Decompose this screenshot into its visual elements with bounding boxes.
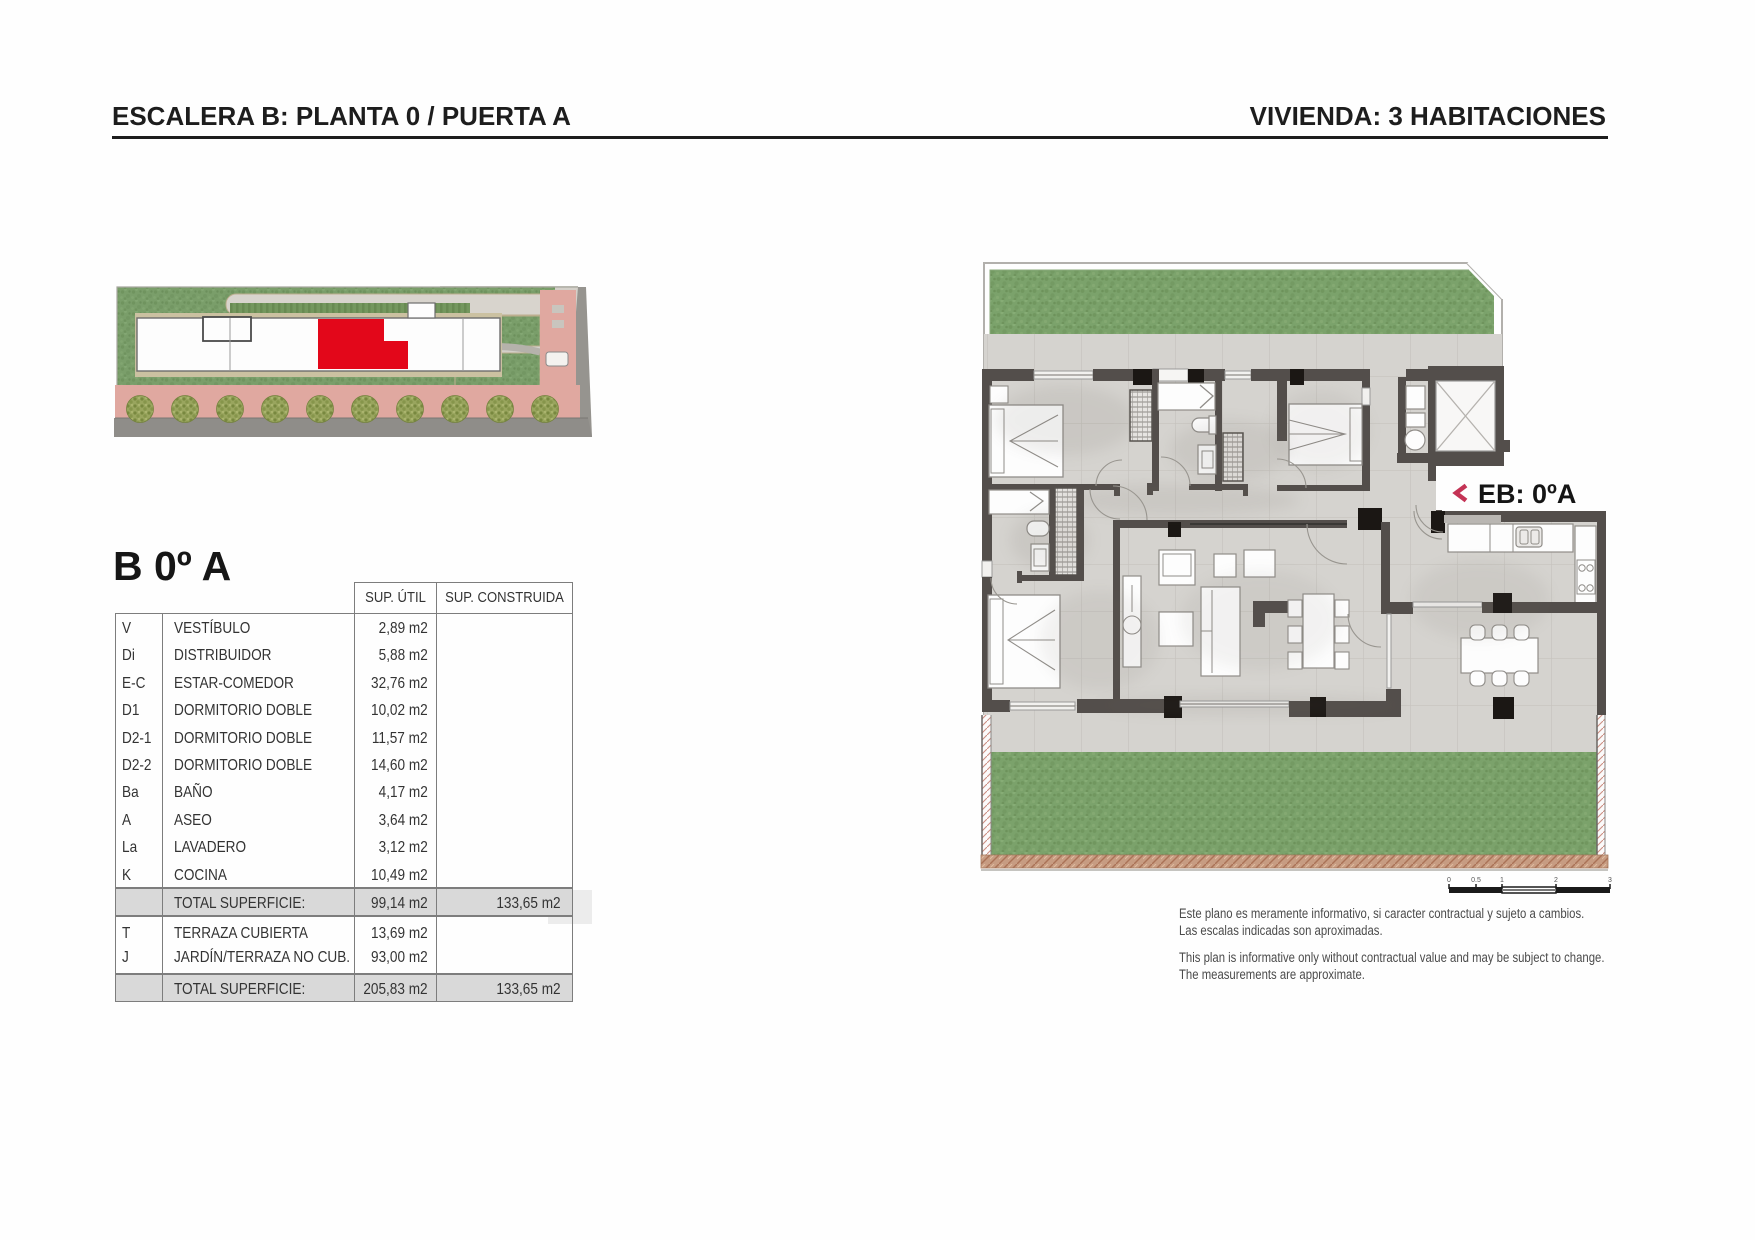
svg-text:0: 0: [1447, 877, 1451, 884]
svg-text:0.5: 0.5: [1471, 877, 1481, 884]
svg-text:3: 3: [1608, 877, 1612, 884]
svg-text:2: 2: [1554, 877, 1558, 884]
svg-text:1: 1: [1500, 877, 1504, 884]
svg-text:EB: 0ºA: EB: 0ºA: [1478, 479, 1576, 509]
